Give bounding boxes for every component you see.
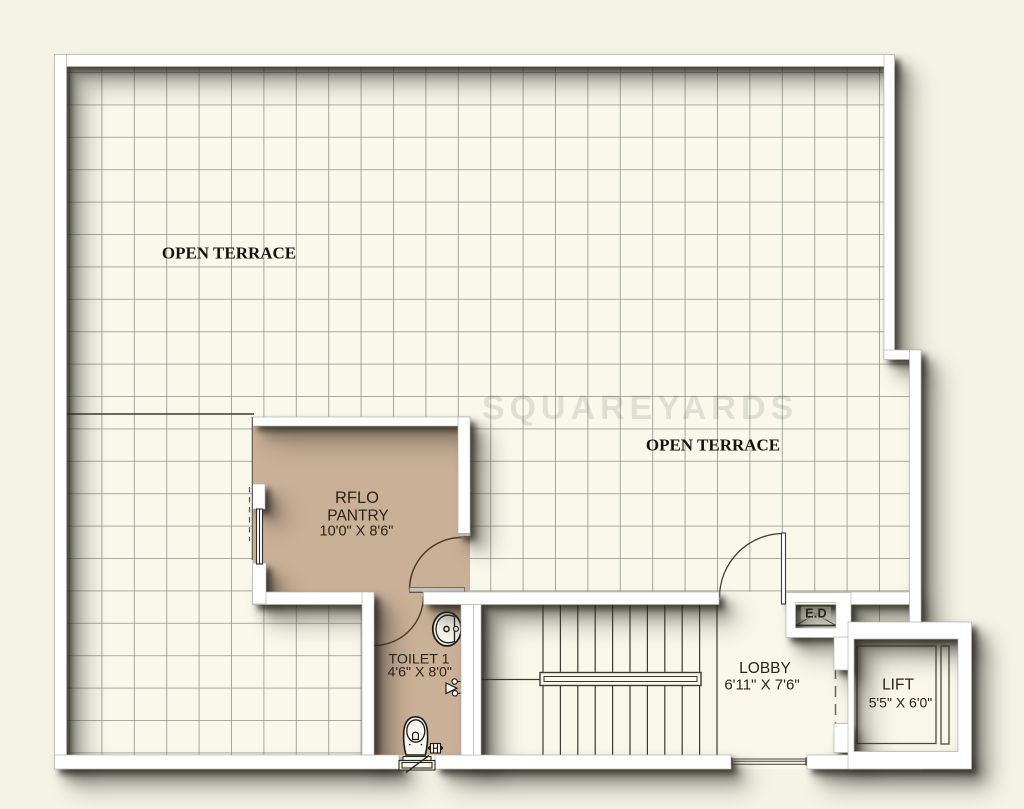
svg-text:LIFT: LIFT	[882, 677, 914, 694]
svg-text:RFLO: RFLO	[335, 489, 379, 507]
svg-text:LOBBY: LOBBY	[739, 660, 791, 677]
svg-text:10'0" X 8'6": 10'0" X 8'6"	[320, 524, 394, 540]
svg-text:SQUAREYARDS: SQUAREYARDS	[482, 389, 798, 427]
svg-text:6'11" X 7'6": 6'11" X 7'6"	[724, 677, 799, 694]
svg-text:E.D: E.D	[805, 607, 827, 621]
svg-text:OPEN TERRACE: OPEN TERRACE	[162, 244, 296, 263]
svg-text:PANTRY: PANTRY	[327, 508, 388, 525]
svg-text:5'5" X 6'0": 5'5" X 6'0"	[869, 695, 933, 711]
svg-text:OPEN TERRACE: OPEN TERRACE	[646, 436, 780, 455]
svg-text:4'6" X 8'0": 4'6" X 8'0"	[387, 665, 451, 681]
